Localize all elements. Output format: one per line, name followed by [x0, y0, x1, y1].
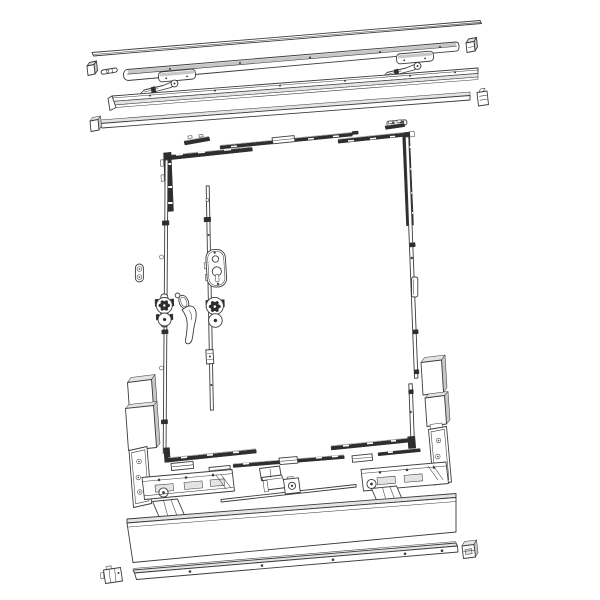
espag-corner-bottom-right: [331, 436, 420, 456]
fixing-plate: [135, 264, 143, 282]
espag-bar-bottom: [233, 455, 344, 468]
espag-bar-top: [220, 131, 358, 149]
lock-gear: [206, 297, 225, 327]
cover-rail-clip: [477, 88, 489, 106]
glazing-block-right: [421, 355, 450, 427]
connector-pin: [101, 68, 117, 74]
upper-end-cap: [87, 61, 98, 76]
door-handle: [175, 293, 196, 344]
right-espag-bar: [405, 137, 419, 438]
technical-drawing-canvas: [0, 0, 600, 600]
roller-bogie-right: [361, 423, 452, 507]
guide-track-end-cap: [466, 38, 478, 53]
glazing-block-left: [126, 375, 161, 451]
rod-coupling: [284, 477, 301, 495]
cover-rail-end-cap: [90, 116, 102, 132]
guide-bracket: [260, 466, 287, 492]
slider-block-right: [352, 454, 373, 463]
track-end-cap: [462, 540, 478, 559]
diagram-svg: [0, 0, 600, 600]
espag-corner-top-right: [338, 131, 415, 226]
slider-block-left: [171, 461, 194, 470]
corner-gear-left: [155, 294, 174, 327]
track-end-bracket: [101, 566, 123, 584]
lock-case: [203, 249, 227, 288]
espag-corner-bottom-left: [164, 448, 257, 463]
striker-fitting: [206, 350, 214, 365]
espag-clip-top-left: [184, 134, 210, 145]
